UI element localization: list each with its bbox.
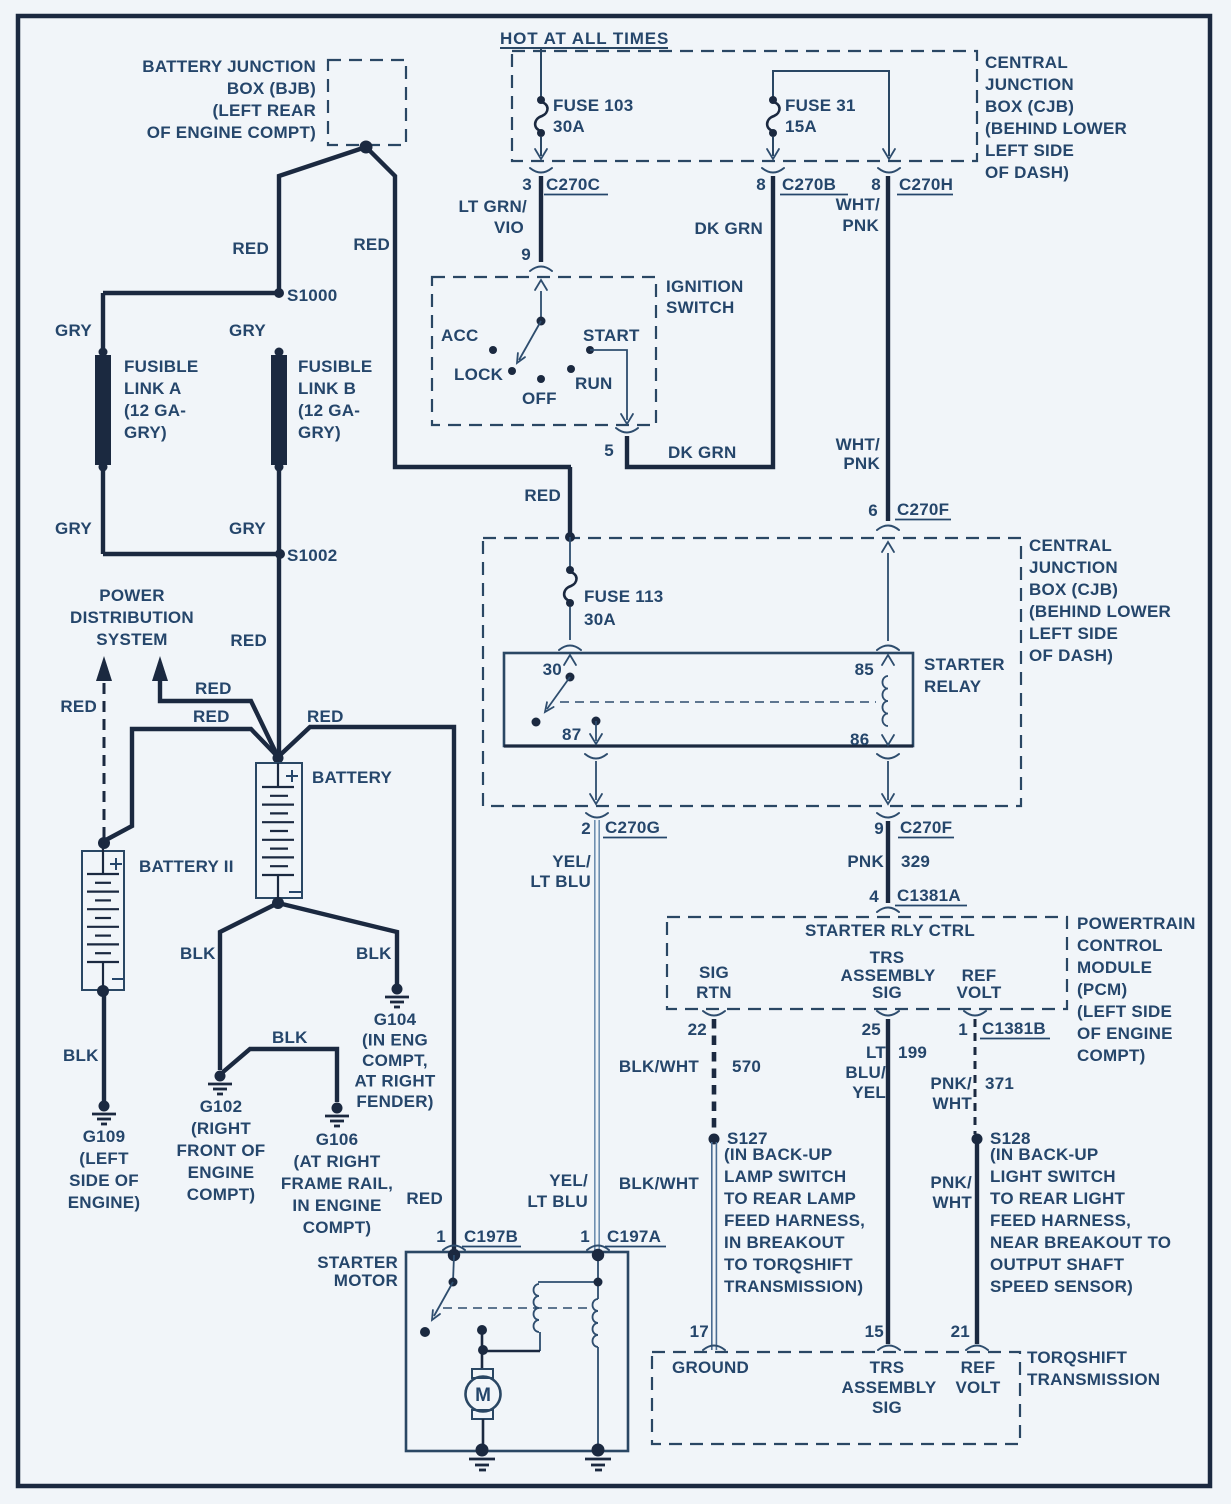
svg-text:FUSIBLE: FUSIBLE [124, 357, 198, 376]
svg-text:GRY: GRY [229, 321, 266, 340]
svg-text:STARTER: STARTER [317, 1253, 398, 1272]
svg-text:LINK B: LINK B [298, 379, 356, 398]
svg-text:RELAY: RELAY [924, 677, 982, 696]
svg-text:3: 3 [522, 175, 532, 194]
svg-text:OF DASH): OF DASH) [985, 163, 1069, 182]
svg-text:87: 87 [562, 725, 581, 744]
svg-text:COMPT): COMPT) [1077, 1046, 1146, 1065]
svg-text:(LEFT REAR: (LEFT REAR [212, 101, 316, 120]
svg-text:C1381B: C1381B [982, 1019, 1046, 1038]
svg-text:LEFT SIDE: LEFT SIDE [1029, 624, 1118, 643]
svg-text:VOLT: VOLT [956, 983, 1001, 1002]
svg-text:FRAME RAIL,: FRAME RAIL, [281, 1174, 393, 1193]
svg-text:RED: RED [524, 486, 561, 505]
svg-text:BLK: BLK [272, 1028, 308, 1047]
svg-text:G109: G109 [83, 1127, 126, 1146]
svg-text:1: 1 [580, 1227, 590, 1246]
svg-text:SYSTEM: SYSTEM [96, 630, 167, 649]
svg-text:ACC: ACC [441, 326, 479, 345]
svg-text:NEAR BREAKOUT TO: NEAR BREAKOUT TO [990, 1233, 1171, 1252]
svg-text:RED: RED [307, 707, 344, 726]
svg-text:(PCM): (PCM) [1077, 980, 1127, 999]
svg-text:30: 30 [543, 660, 562, 679]
svg-text:RED: RED [353, 235, 390, 254]
svg-text:OF ENGINE: OF ENGINE [1077, 1024, 1173, 1043]
svg-text:LAMP SWITCH: LAMP SWITCH [724, 1167, 846, 1186]
svg-text:BLK: BLK [180, 944, 216, 963]
svg-text:1: 1 [958, 1020, 968, 1039]
svg-text:4: 4 [869, 887, 879, 906]
svg-text:RED: RED [195, 679, 232, 698]
svg-text:VIO: VIO [494, 218, 524, 237]
svg-text:BLU/: BLU/ [845, 1063, 886, 1082]
svg-text:LT: LT [866, 1043, 886, 1062]
svg-text:BLK: BLK [63, 1046, 99, 1065]
svg-text:(BEHIND LOWER: (BEHIND LOWER [985, 119, 1127, 138]
svg-text:C270F: C270F [897, 500, 949, 519]
svg-text:GROUND: GROUND [672, 1358, 749, 1377]
svg-text:FUSE 103: FUSE 103 [553, 96, 633, 115]
svg-text:YEL/: YEL/ [552, 852, 591, 871]
svg-text:WHT/: WHT/ [836, 195, 880, 214]
svg-text:2: 2 [581, 819, 591, 838]
svg-text:PNK: PNK [842, 216, 879, 235]
svg-text:BLK/WHT: BLK/WHT [619, 1174, 699, 1193]
svg-text:OF DASH): OF DASH) [1029, 646, 1113, 665]
svg-text:BLK: BLK [356, 944, 392, 963]
svg-text:371: 371 [985, 1074, 1014, 1093]
svg-text:S1000: S1000 [287, 286, 337, 305]
svg-text:C197B: C197B [464, 1227, 518, 1246]
svg-text:TO TORQSHIFT: TO TORQSHIFT [724, 1255, 853, 1274]
svg-text:FUSE 113: FUSE 113 [584, 587, 664, 606]
svg-text:SPEED SENSOR): SPEED SENSOR) [990, 1277, 1133, 1296]
svg-text:TRS: TRS [870, 1358, 905, 1377]
svg-text:SIG: SIG [872, 983, 902, 1002]
svg-text:BOX (CJB): BOX (CJB) [1029, 580, 1118, 599]
svg-text:COMPT): COMPT) [303, 1218, 372, 1237]
svg-text:TRANSMISSION): TRANSMISSION) [724, 1277, 863, 1296]
svg-text:MOTOR: MOTOR [334, 1271, 398, 1290]
svg-text:OFF: OFF [522, 389, 557, 408]
svg-text:C1381A: C1381A [897, 886, 961, 905]
svg-text:START: START [583, 326, 640, 345]
svg-text:OF ENGINE COMPT): OF ENGINE COMPT) [147, 123, 316, 142]
svg-text:WHT/: WHT/ [836, 435, 880, 454]
svg-text:JUNCTION: JUNCTION [1029, 558, 1118, 577]
svg-text:LINK A: LINK A [124, 379, 182, 398]
svg-text:COMPT): COMPT) [187, 1185, 256, 1204]
svg-text:SIG: SIG [699, 963, 729, 982]
svg-text:PNK: PNK [843, 454, 880, 473]
svg-text:(RIGHT: (RIGHT [191, 1119, 251, 1138]
svg-text:329: 329 [901, 852, 930, 871]
svg-text:PNK/: PNK/ [930, 1074, 972, 1093]
svg-text:8: 8 [871, 175, 881, 194]
svg-text:30A: 30A [553, 117, 585, 136]
svg-text:DK GRN: DK GRN [694, 219, 763, 238]
svg-text:BATTERY JUNCTION: BATTERY JUNCTION [142, 57, 316, 76]
svg-text:IN ENGINE: IN ENGINE [292, 1196, 381, 1215]
svg-text:C197A: C197A [607, 1227, 661, 1246]
svg-text:FEED HARNESS,: FEED HARNESS, [990, 1211, 1131, 1230]
svg-text:FUSIBLE: FUSIBLE [298, 357, 372, 376]
svg-text:6: 6 [868, 501, 878, 520]
svg-text:ENGINE: ENGINE [188, 1163, 255, 1182]
svg-text:HOT AT ALL TIMES: HOT AT ALL TIMES [500, 29, 669, 48]
svg-text:15A: 15A [785, 117, 817, 136]
svg-text:FUSE 31: FUSE 31 [785, 96, 856, 115]
svg-text:AT RIGHT: AT RIGHT [354, 1072, 435, 1091]
svg-text:RED: RED [193, 707, 230, 726]
svg-text:FEED HARNESS,: FEED HARNESS, [724, 1211, 865, 1230]
svg-text:DK GRN: DK GRN [668, 443, 737, 462]
svg-text:25: 25 [862, 1020, 881, 1039]
svg-text:LIGHT SWITCH: LIGHT SWITCH [990, 1167, 1116, 1186]
svg-text:BOX (CJB): BOX (CJB) [985, 97, 1074, 116]
svg-text:8: 8 [756, 175, 766, 194]
svg-text:(BEHIND LOWER: (BEHIND LOWER [1029, 602, 1171, 621]
svg-text:LEFT SIDE: LEFT SIDE [985, 141, 1074, 160]
svg-text:LT BLU: LT BLU [527, 1192, 588, 1211]
svg-text:BATTERY: BATTERY [312, 768, 393, 787]
svg-text:C270G: C270G [605, 818, 660, 837]
svg-text:(12 GA-: (12 GA- [298, 401, 360, 420]
svg-text:CONTROL: CONTROL [1077, 936, 1163, 955]
svg-text:C270H: C270H [899, 175, 953, 194]
svg-text:G106: G106 [316, 1130, 359, 1149]
svg-text:30A: 30A [584, 610, 616, 629]
svg-text:TRS: TRS [870, 948, 905, 967]
svg-text:SIG: SIG [872, 1398, 902, 1417]
svg-text:C270C: C270C [546, 175, 600, 194]
svg-text:22: 22 [688, 1020, 707, 1039]
svg-text:JUNCTION: JUNCTION [985, 75, 1074, 94]
svg-text:GRY): GRY) [298, 423, 341, 442]
svg-text:TO REAR LIGHT: TO REAR LIGHT [990, 1189, 1126, 1208]
svg-text:9: 9 [521, 245, 531, 264]
svg-text:GRY): GRY) [124, 423, 167, 442]
svg-text:REF: REF [961, 1358, 996, 1377]
svg-text:RED: RED [230, 631, 267, 650]
svg-text:MODULE: MODULE [1077, 958, 1152, 977]
svg-text:FRONT OF: FRONT OF [177, 1141, 266, 1160]
svg-text:WHT: WHT [933, 1094, 973, 1113]
svg-text:RED: RED [232, 239, 269, 258]
svg-text:YEL/: YEL/ [549, 1171, 588, 1190]
svg-text:TORQSHIFT: TORQSHIFT [1027, 1348, 1128, 1367]
svg-text:VOLT: VOLT [955, 1378, 1000, 1397]
svg-text:86: 86 [850, 730, 869, 749]
svg-text:(IN BACK-UP: (IN BACK-UP [990, 1145, 1099, 1164]
svg-text:STARTER RLY CTRL: STARTER RLY CTRL [805, 921, 975, 940]
svg-text:ENGINE): ENGINE) [68, 1193, 141, 1212]
svg-text:POWER: POWER [99, 586, 164, 605]
svg-text:FENDER): FENDER) [356, 1092, 433, 1111]
svg-text:TRANSMISSION: TRANSMISSION [1027, 1370, 1160, 1389]
svg-text:RTN: RTN [696, 983, 732, 1002]
svg-text:WHT: WHT [933, 1193, 973, 1212]
svg-text:GRY: GRY [55, 519, 92, 538]
svg-text:G104: G104 [374, 1010, 417, 1029]
svg-text:GRY: GRY [229, 519, 266, 538]
svg-text:17: 17 [690, 1322, 709, 1341]
svg-text:85: 85 [855, 660, 874, 679]
svg-text:ASSEMBLY: ASSEMBLY [842, 1378, 937, 1397]
svg-text:21: 21 [951, 1322, 970, 1341]
svg-text:YEL: YEL [852, 1083, 886, 1102]
svg-text:(LEFT: (LEFT [79, 1149, 129, 1168]
svg-text:OUTPUT SHAFT: OUTPUT SHAFT [990, 1255, 1125, 1274]
svg-text:BLK/WHT: BLK/WHT [619, 1057, 699, 1076]
svg-text:SIDE OF: SIDE OF [69, 1171, 139, 1190]
svg-text:IN BREAKOUT: IN BREAKOUT [724, 1233, 845, 1252]
svg-text:DISTRIBUTION: DISTRIBUTION [70, 608, 194, 627]
svg-text:LOCK: LOCK [454, 365, 504, 384]
svg-text:199: 199 [898, 1043, 927, 1062]
svg-text:CENTRAL: CENTRAL [1029, 536, 1112, 555]
svg-text:LT GRN/: LT GRN/ [459, 197, 528, 216]
svg-text:5: 5 [604, 441, 614, 460]
svg-text:RED: RED [406, 1189, 443, 1208]
svg-text:G102: G102 [200, 1097, 243, 1116]
svg-text:POWERTRAIN: POWERTRAIN [1077, 914, 1196, 933]
svg-text:C270B: C270B [782, 175, 836, 194]
svg-text:PNK: PNK [847, 852, 884, 871]
svg-text:1: 1 [436, 1227, 446, 1246]
svg-text:BATTERY II: BATTERY II [139, 857, 234, 876]
svg-text:(IN ENG: (IN ENG [362, 1031, 428, 1050]
svg-text:TO REAR LAMP: TO REAR LAMP [724, 1189, 856, 1208]
svg-text:M: M [475, 1385, 491, 1406]
svg-text:(12 GA-: (12 GA- [124, 401, 186, 420]
svg-text:570: 570 [732, 1057, 761, 1076]
svg-text:9: 9 [874, 819, 884, 838]
svg-text:RUN: RUN [575, 374, 613, 393]
svg-text:STARTER: STARTER [924, 655, 1005, 674]
svg-text:GRY: GRY [55, 321, 92, 340]
svg-text:PNK/: PNK/ [930, 1173, 972, 1192]
svg-text:SWITCH: SWITCH [666, 298, 735, 317]
svg-text:(IN BACK-UP: (IN BACK-UP [724, 1145, 833, 1164]
svg-text:COMPT,: COMPT, [362, 1051, 428, 1070]
svg-text:LT BLU: LT BLU [530, 872, 591, 891]
svg-text:BOX (BJB): BOX (BJB) [227, 79, 316, 98]
svg-text:RED: RED [60, 697, 97, 716]
svg-text:S1002: S1002 [287, 546, 337, 565]
svg-text:IGNITION: IGNITION [666, 277, 744, 296]
svg-text:(AT RIGHT: (AT RIGHT [294, 1152, 381, 1171]
svg-text:15: 15 [865, 1322, 884, 1341]
svg-text:CENTRAL: CENTRAL [985, 53, 1068, 72]
svg-text:(LEFT SIDE: (LEFT SIDE [1077, 1002, 1172, 1021]
svg-text:C270F: C270F [900, 818, 952, 837]
